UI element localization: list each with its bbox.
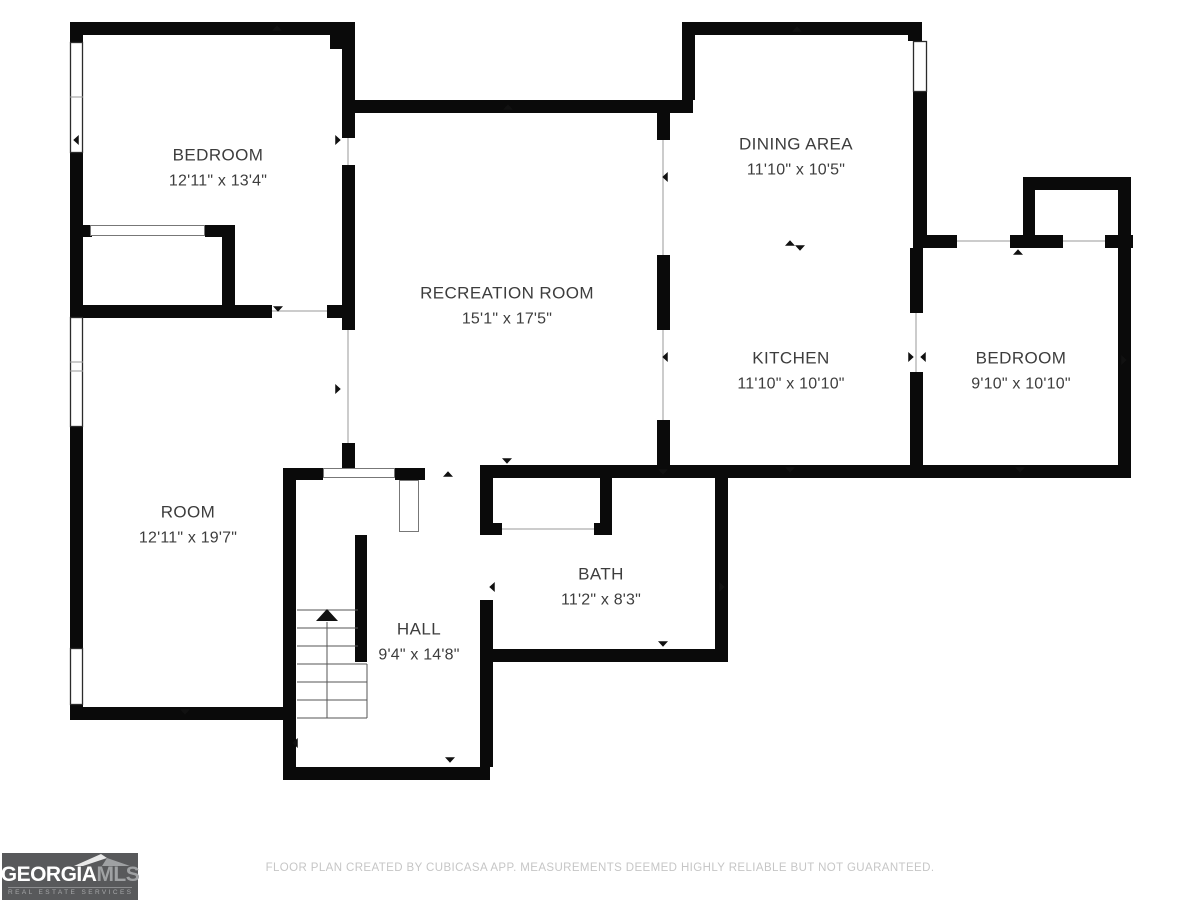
- room-dimensions: 15'1" x 17'5": [420, 307, 594, 333]
- room-name: BEDROOM: [169, 142, 267, 169]
- room-name: DINING AREA: [739, 131, 853, 158]
- room-label-dining-area: DINING AREA 11'10" x 10'5": [739, 131, 853, 184]
- room-name: ROOM: [139, 499, 237, 526]
- room-label-bedroom-2: BEDROOM 9'10" x 10'10": [971, 345, 1070, 398]
- room-dimensions: 11'2" x 8'3": [561, 588, 641, 614]
- room-name: RECREATION ROOM: [420, 280, 594, 307]
- logo-wordmark-mls: MLS: [96, 864, 139, 885]
- georgia-mls-logo: GEORGIA MLS REAL ESTATE SERVICES: [2, 853, 138, 900]
- room-name: HALL: [378, 616, 459, 643]
- room-name: BATH: [561, 561, 641, 588]
- logo-roof-icon: [74, 854, 130, 866]
- room-name: BEDROOM: [971, 345, 1070, 372]
- room-name: KITCHEN: [737, 345, 844, 372]
- logo-tagline: REAL ESTATE SERVICES: [8, 887, 132, 896]
- room-label-bedroom-1: BEDROOM 12'11" x 13'4": [169, 142, 267, 195]
- room-dimensions: 12'11" x 19'7": [139, 526, 237, 552]
- logo-wordmark-georgia: GEORGIA: [1, 864, 97, 885]
- floorplan-page: BEDROOM 12'11" x 13'4" RECREATION ROOM 1…: [0, 0, 1200, 900]
- room-dimensions: 12'11" x 13'4": [169, 169, 267, 195]
- footer-disclaimer: FLOOR PLAN CREATED BY CUBICASA APP. MEAS…: [0, 862, 1200, 874]
- room-label-hall: HALL 9'4" x 14'8": [378, 616, 459, 669]
- room-dimensions: 9'10" x 10'10": [971, 372, 1070, 398]
- room-dimensions: 11'10" x 10'5": [739, 158, 853, 184]
- room-label-kitchen: KITCHEN 11'10" x 10'10": [737, 345, 844, 398]
- logo-wordmark: GEORGIA MLS: [8, 864, 132, 885]
- room-dimensions: 11'10" x 10'10": [737, 372, 844, 398]
- floorplan-drawing: [0, 0, 1200, 900]
- room-label-recreation-room: RECREATION ROOM 15'1" x 17'5": [420, 280, 594, 333]
- room-dimensions: 9'4" x 14'8": [378, 643, 459, 669]
- room-label-room: ROOM 12'11" x 19'7": [139, 499, 237, 552]
- room-label-bath: BATH 11'2" x 8'3": [561, 561, 641, 614]
